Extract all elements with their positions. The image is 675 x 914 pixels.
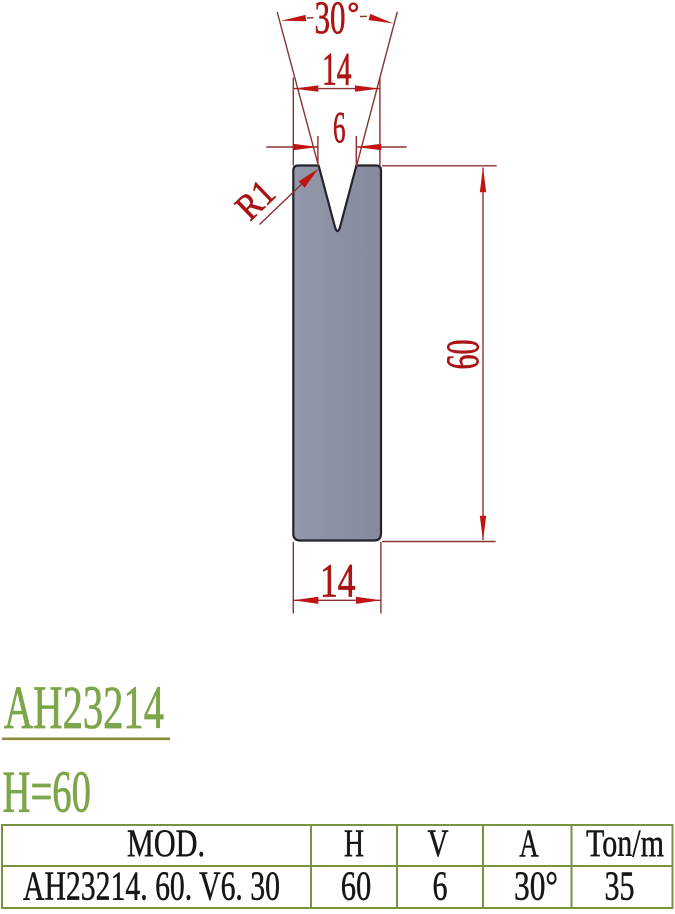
svg-text:AH23214: AH23214 <box>4 675 164 742</box>
svg-text:60: 60 <box>437 340 489 370</box>
svg-text:14: 14 <box>320 554 356 607</box>
svg-text:14: 14 <box>322 44 352 96</box>
svg-text:H=60: H=60 <box>3 759 92 825</box>
svg-text:A: A <box>519 822 539 865</box>
svg-text:6: 6 <box>433 863 448 909</box>
svg-text:Ton/m: Ton/m <box>586 822 664 865</box>
svg-text:AH23214. 60. V6. 30: AH23214. 60. V6. 30 <box>23 863 280 909</box>
svg-text:MOD.: MOD. <box>127 822 205 865</box>
svg-text:30°: 30° <box>514 863 558 909</box>
svg-text:35: 35 <box>605 863 635 909</box>
svg-text:V: V <box>428 822 449 865</box>
svg-text:30: 30 <box>315 0 346 44</box>
svg-text:H: H <box>344 822 364 865</box>
svg-text:6: 6 <box>333 103 346 152</box>
svg-text:60: 60 <box>341 863 372 909</box>
